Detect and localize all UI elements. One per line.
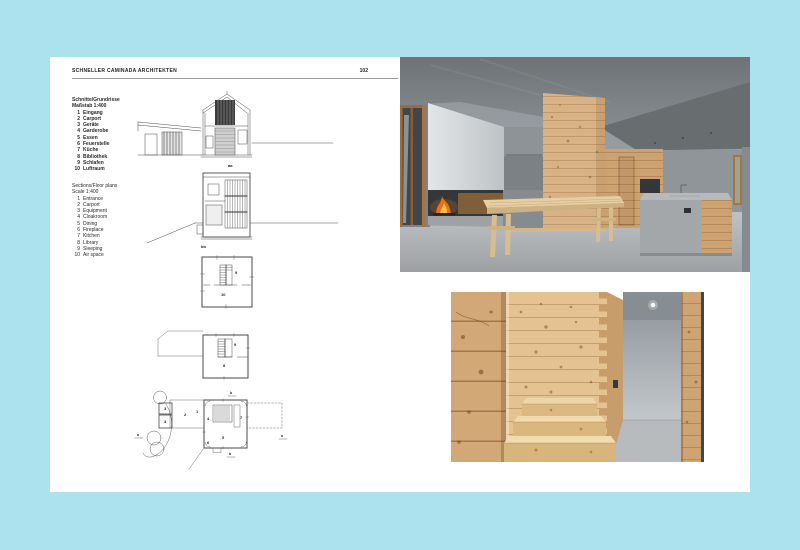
plan-ground-room-4: 4 (207, 416, 210, 421)
plan-ground-room-7: 7 (240, 415, 243, 420)
plan-upper-room-9: 9 (235, 270, 238, 275)
plan-ground-room-6: 6 (207, 440, 210, 445)
plan-middle-room-9: 9 (234, 342, 237, 347)
section-cut-a-left: a (137, 433, 139, 437)
light-switch (613, 380, 618, 388)
legend-english: Sections/Floor plans Scale 1:400 1Entran… (72, 183, 142, 259)
kitchen-island (640, 185, 732, 256)
drawing-plan-upper: 9 10 (196, 253, 256, 313)
plan-upper-room-10: 10 (221, 292, 226, 297)
book-spread: SCHNELLER CAMINADA ARCHITEKTEN 102 Schni… (50, 57, 750, 492)
section-aa-lines (138, 91, 333, 157)
legend-english-items: 1Entrance2Carport3Equipment4Cloakroom5Di… (72, 196, 142, 259)
photo-dining-kitchen (400, 57, 750, 272)
plan-ground-room-3b: 3 (164, 419, 167, 424)
drawing-plan-ground: 1 2 3 3 4 5 6 7 a a b b (133, 387, 298, 482)
legend-german-items: 1Eingang2Carport3Geräte4Garderobe5Essen6… (72, 110, 142, 173)
corridor-floor (611, 420, 686, 462)
running-head: SCHNELLER CAMINADA ARCHITEKTEN (72, 68, 177, 74)
stair-corridor-scene (451, 292, 704, 462)
plan-middle-room-8: 8 (223, 363, 226, 368)
dining-room-scene (400, 57, 750, 272)
plan-upper-lines (201, 256, 254, 309)
drawing-plan-middle: 9 8 (154, 323, 254, 383)
plan-ground-room-1: 1 (196, 409, 199, 414)
wall-niche (640, 179, 660, 193)
plan-ground-lines (135, 391, 287, 469)
header-rule (72, 78, 398, 79)
page-number: 102 (330, 68, 368, 74)
ceiling-light (651, 303, 656, 308)
plan-ground-room-3a: 3 (164, 406, 167, 411)
drawing-section-aa: aa (135, 90, 335, 175)
left-window (400, 101, 430, 227)
section-cut-b-bottom: b (229, 452, 231, 456)
section-bb-lines (147, 173, 338, 243)
right-wood-wall (681, 292, 704, 462)
legend-item: 10Luftraum (72, 166, 142, 172)
section-cut-a-right: a (281, 434, 283, 438)
plan-middle-lines (158, 331, 250, 380)
plan-ground-room-2: 2 (184, 412, 187, 417)
section-cut-b-top: b (230, 391, 232, 395)
section-bb-caption: bb (201, 244, 206, 249)
canvas-background: SCHNELLER CAMINADA ARCHITEKTEN 102 Schni… (0, 0, 800, 550)
section-aa-caption: aa (228, 163, 233, 168)
left-wood-column (451, 292, 506, 462)
legend-item: 10Air space (72, 252, 142, 258)
door (619, 157, 634, 225)
plan-ground-room-5: 5 (222, 435, 225, 440)
legend-german: Schnitte/Grundrisse Maßstab 1:400 1Einga… (72, 97, 142, 173)
drawing-section-bb: bb (145, 171, 340, 253)
photo-timber-stair (451, 292, 704, 462)
